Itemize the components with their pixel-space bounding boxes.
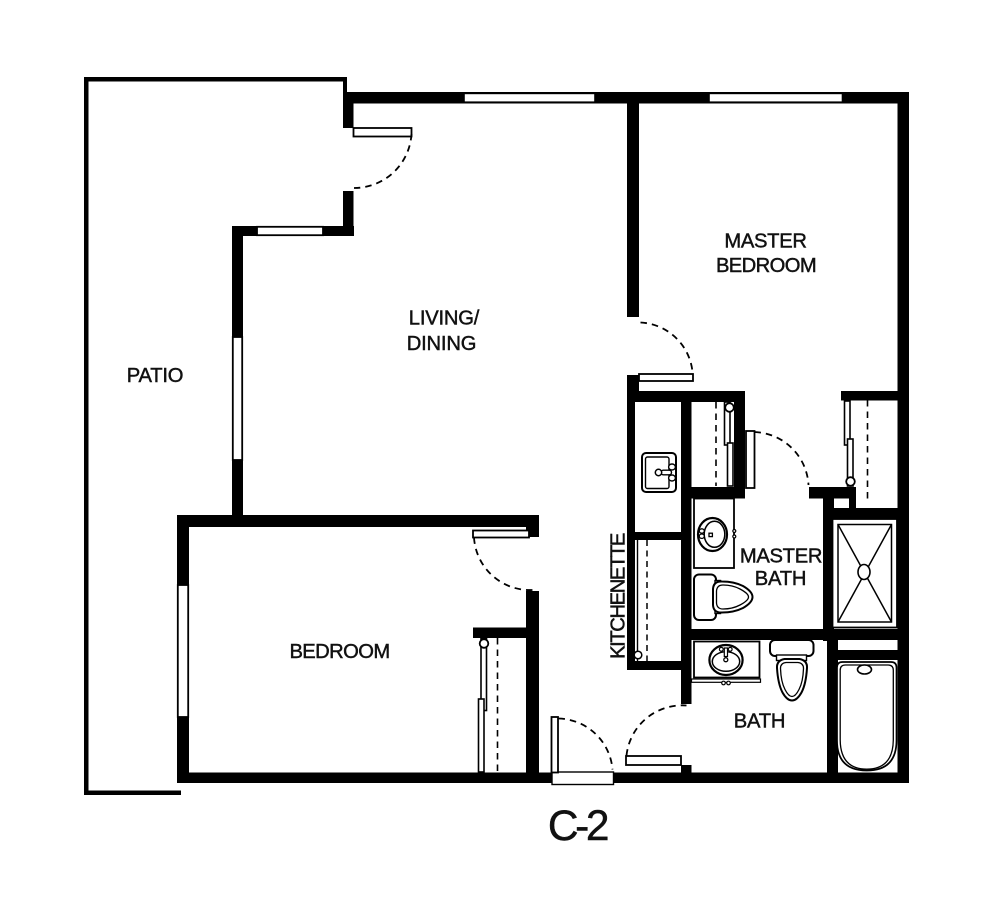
svg-text:KITCHENETTE: KITCHENETTE bbox=[608, 533, 630, 659]
svg-text:BATH: BATH bbox=[755, 568, 807, 590]
svg-text:BEDROOM: BEDROOM bbox=[716, 255, 816, 277]
svg-text:MASTER: MASTER bbox=[740, 546, 822, 568]
svg-text:PATIO: PATIO bbox=[127, 365, 184, 387]
svg-text:MASTER: MASTER bbox=[724, 231, 806, 253]
svg-text:DINING: DINING bbox=[407, 333, 476, 355]
svg-text:C-2: C-2 bbox=[548, 803, 608, 850]
svg-text:BATH: BATH bbox=[734, 711, 786, 733]
svg-text:LIVING/: LIVING/ bbox=[409, 308, 480, 330]
svg-text:BEDROOM: BEDROOM bbox=[289, 641, 389, 663]
